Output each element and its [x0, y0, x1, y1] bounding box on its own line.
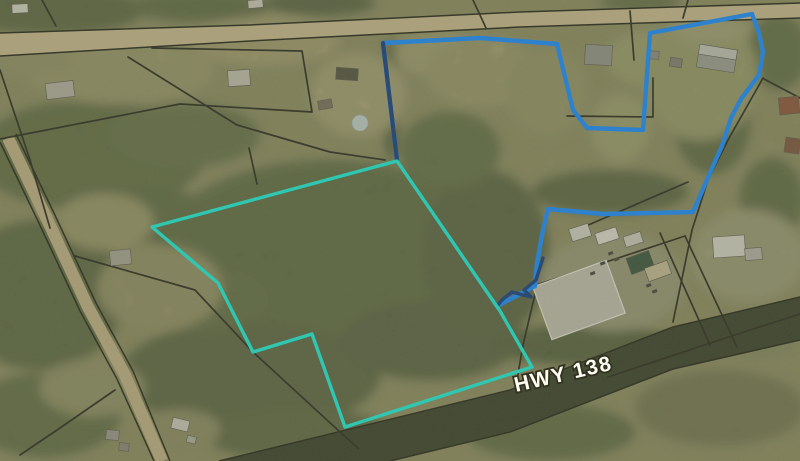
map-canvas: HWY 138 — [0, 0, 800, 461]
aerial-parcel-map: HWY 138 — [0, 0, 800, 461]
grain-overlay — [0, 0, 800, 461]
